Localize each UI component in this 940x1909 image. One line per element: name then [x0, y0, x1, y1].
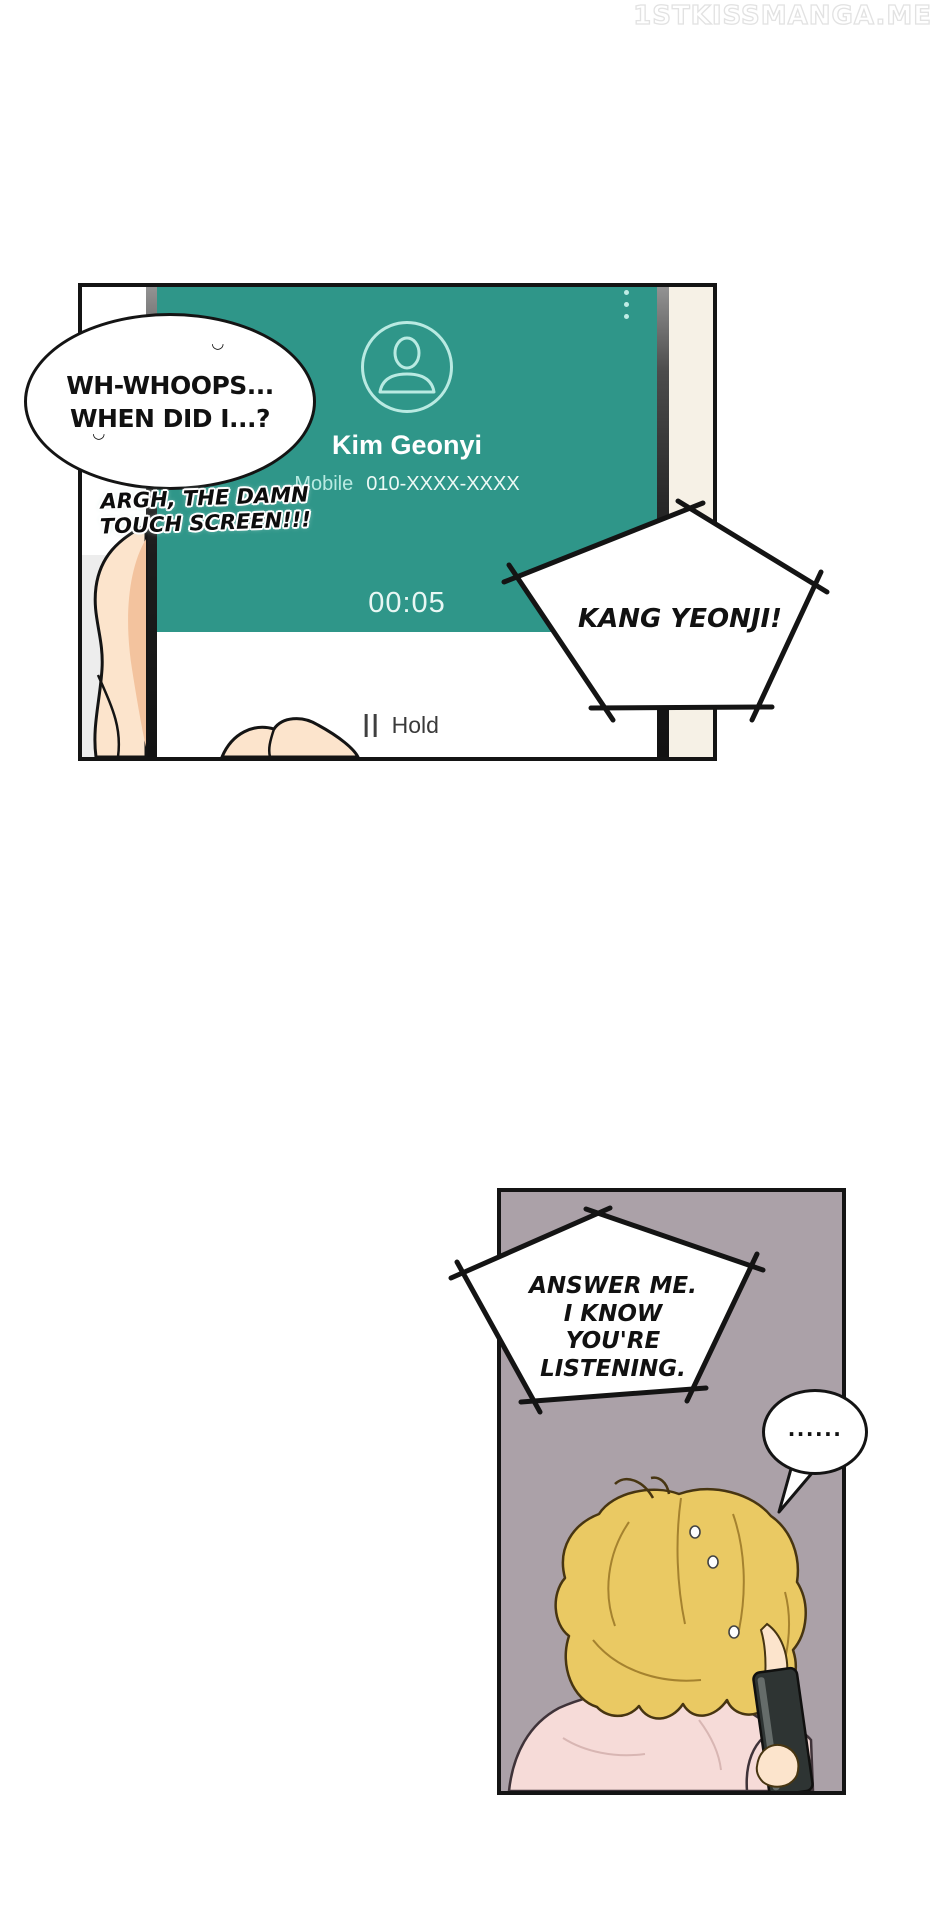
- speech-bubble-whoops: WH-WHOOPS... WHEN DID I...?: [24, 313, 316, 490]
- shout-bubble-kang-outline: [440, 455, 860, 745]
- shout-text-answer: ANSWER ME. I KNOW YOU'RE LISTENING.: [513, 1273, 713, 1383]
- speech-bubble-silence: ......: [762, 1389, 868, 1475]
- speech-line: WH-WHOOPS...: [66, 369, 274, 402]
- shout-line: ANSWER ME.: [513, 1273, 713, 1301]
- shout-line: LISTENING.: [513, 1356, 713, 1384]
- comic-page: 1STKISSMANGA.ME Kim Geonyi Mobile 010-XX…: [0, 0, 940, 1909]
- caption-argh: ARGH, THE DAMN TOUCH SCREEN!!!: [79, 482, 331, 541]
- breath-mark: ◡: [93, 424, 105, 442]
- shout-text-kang: KANG YEONJI!: [560, 604, 800, 634]
- shout-line: I KNOW YOU'RE: [513, 1301, 713, 1356]
- silence-dots: ......: [788, 1417, 843, 1441]
- breath-mark: ◡: [212, 334, 224, 352]
- site-watermark: 1STKISSMANGA.ME: [633, 1, 932, 31]
